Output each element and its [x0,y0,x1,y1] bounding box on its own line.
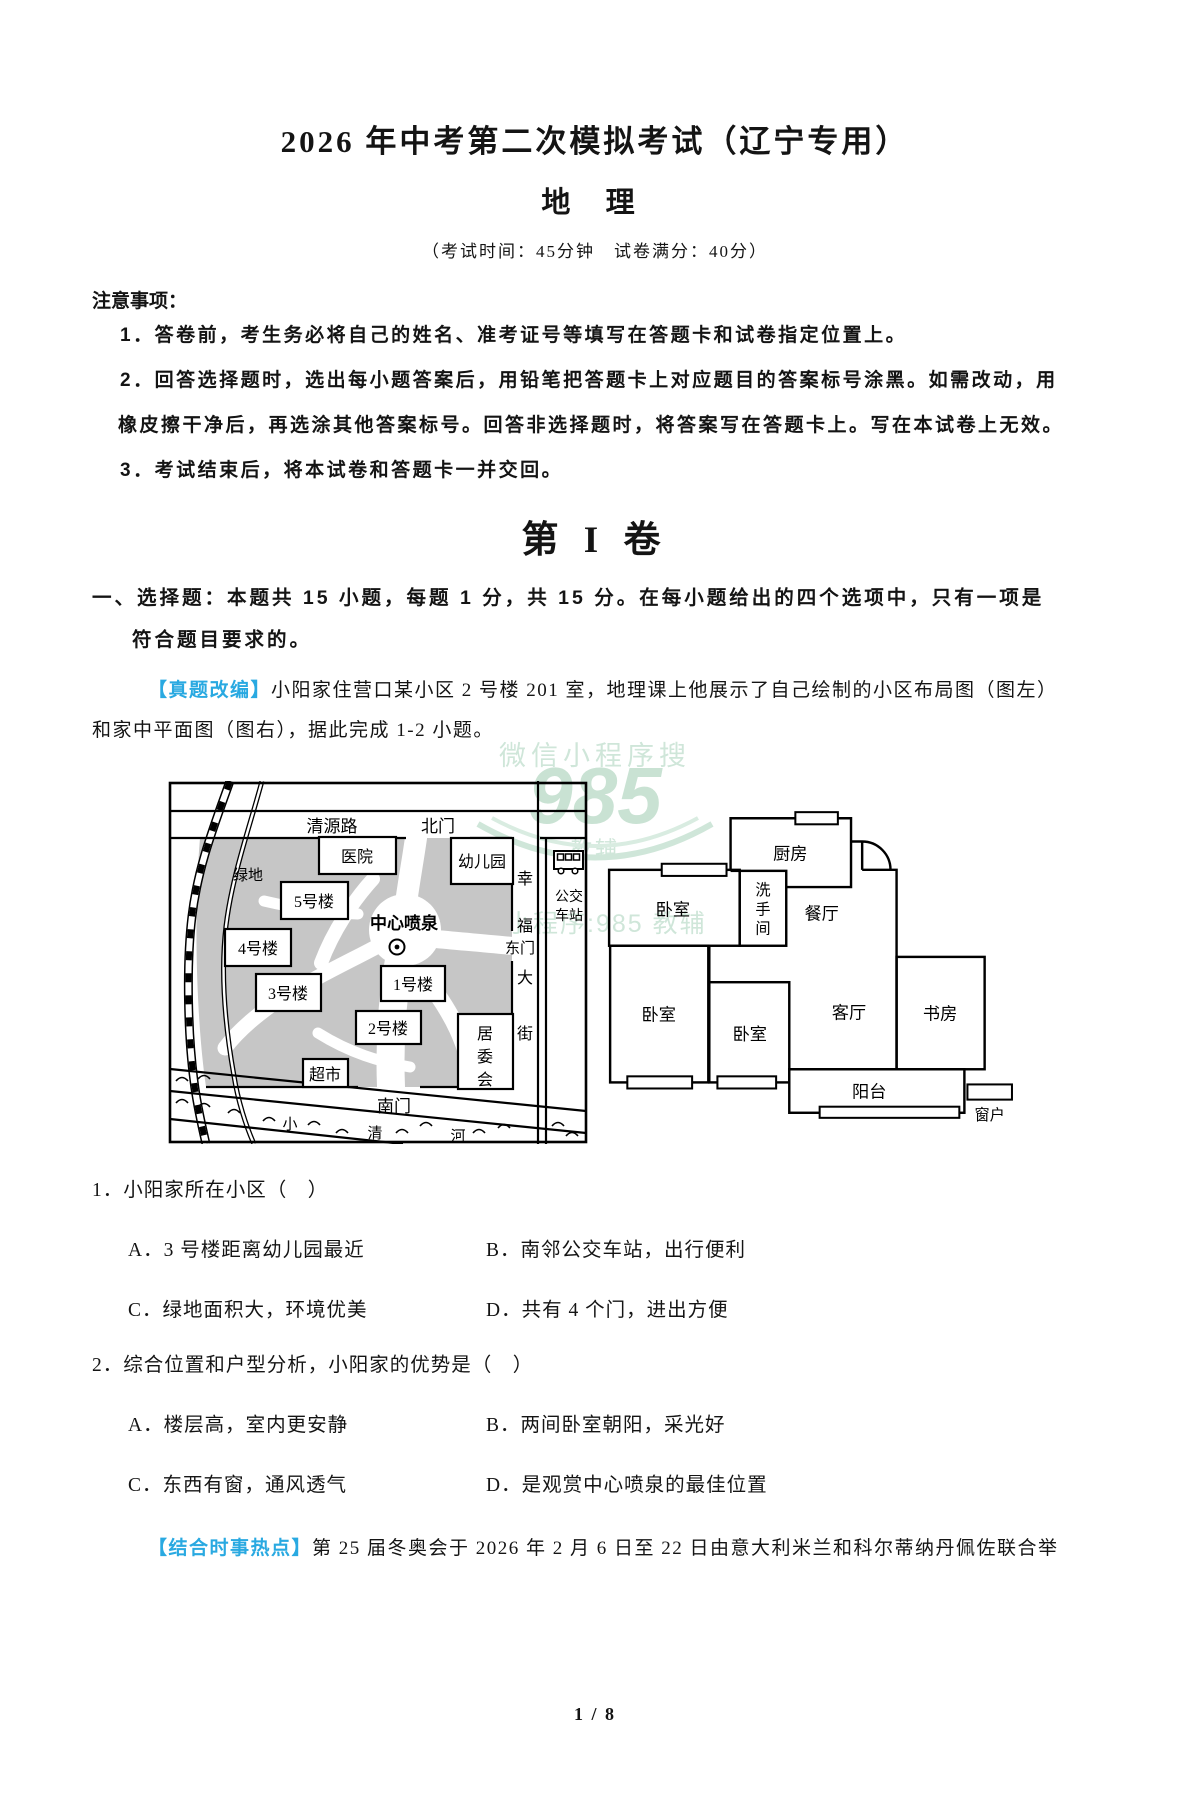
exam-info: （考试时间：45分钟 试卷满分：40分） [92,237,1098,262]
label-north-gate: 北门 [421,817,455,836]
notice-heading: 注意事项： [92,286,1098,313]
label-committee-2: 委 [477,1048,493,1066]
label-balcony: 阳台 [852,1083,886,1102]
label-street-3: 大 [517,969,533,987]
volume-title: 第 I 卷 [92,509,1098,563]
page-title: 2026 年中考第二次模拟考试（辽宁专用） [92,116,1098,161]
label-hospital: 医院 [341,848,373,866]
fountain-icon [390,940,405,955]
floor-plan-figure: 厨房 卧室 洗 手 间 餐厅 卧室 卧室 客厅 书房 阳台 窗户 [600,801,1015,1130]
label-kitchen: 厨房 [773,845,807,864]
window-legend-icon [967,1084,1012,1099]
living-right-wall [862,870,896,1069]
label-window-legend: 窗户 [975,1106,1005,1124]
kitchen-window [795,812,838,824]
label-building2: 2号楼 [368,1020,408,1038]
passage-1-line2: 和家中平面图（图右），据此完成 1-2 小题。 [92,711,1098,751]
section-instruction-line2: 符合题目要求的。 [132,619,1098,661]
label-bus-station-1: 公交 [555,888,583,905]
bedroom-3-window [717,1076,776,1088]
label-east-gate: 东门 [505,940,535,957]
label-street-4: 街 [517,1025,533,1043]
question-1-options-cd: C．绿地面积大，环境优美 D．共有 4 个门，进出方便 [92,1293,1098,1322]
notice-item-1: 1．答卷前，考生务必将自己的姓名、准考证号等填写在答题卡和试卷指定位置上。 [120,313,1098,358]
question-2-option-a: A．楼层高，室内更安静 [128,1408,486,1437]
section-instruction-line1: 一、选择题：本题共 15 小题，每题 1 分，共 15 分。在每小题给出的四个选… [92,577,1098,619]
question-2-options-ab: A．楼层高，室内更安静 B．两间卧室朝阳，采光好 [92,1408,1098,1437]
subject-title: 地 理 [92,179,1098,221]
passage-1-line1: 小阳家住营口某小区 2 号楼 201 室，地理课上他展示了自己绘制的小区布局图（… [271,680,1058,701]
notice-item-2-line2: 橡皮擦干净后，再选涂其他答案标号。回答非选择题时，将答案写在答题卡上。写在本试卷… [118,403,1098,448]
page-number: 1 / 8 [0,1704,1190,1725]
label-river-2: 清 [367,1125,382,1142]
label-washroom-2: 手 [755,901,770,918]
question-1-option-c: C．绿地面积大，环境优美 [128,1293,486,1322]
label-study: 书房 [923,1005,957,1024]
label-committee-3: 会 [477,1071,493,1089]
label-washroom-1: 洗 [755,882,770,899]
label-building1: 1号楼 [393,976,433,994]
label-south-gate: 南门 [377,1097,411,1116]
label-living: 客厅 [832,1004,866,1023]
question-1-option-a: A．3 号楼距离幼儿园最近 [128,1233,486,1262]
question-2-stem: 2．综合位置和户型分析，小阳家的优势是（ ） [92,1348,1098,1377]
label-river-1: 小 [282,1116,297,1133]
question-1-options-ab: A．3 号楼距离幼儿园最近 B．南邻公交车站，出行便利 [92,1233,1098,1262]
label-fountain: 中心喷泉 [370,913,439,933]
notice-item-3: 3．考试结束后，将本试卷和答题卡一并交回。 [120,448,1098,493]
label-river-3: 河 [450,1128,465,1144]
label-bedroom-3: 卧室 [733,1025,767,1044]
label-street-2: 福 [517,917,533,935]
bus-icon [554,851,583,874]
question-1-option-b: B．南邻公交车站，出行便利 [486,1233,1098,1262]
label-green-space: 绿地 [233,867,263,884]
passage-2-text: 第 25 届冬奥会于 2026 年 2 月 6 日至 22 日由意大利米兰和科尔… [312,1538,1059,1559]
question-1-option-d: D．共有 4 个门，进出方便 [486,1293,1098,1322]
label-qingyuan-road: 清源路 [307,817,358,836]
figure-row: 清源路 北门 医院 幼儿园 绿地 5号楼 中心喷泉 4号楼 3号楼 1号楼 2号… [92,755,1098,1147]
question-2-option-c: C．东西有窗，通风透气 [128,1468,486,1497]
label-kindergarten: 幼儿园 [458,853,506,871]
label-bedroom-1: 卧室 [656,900,690,919]
bedroom-2-window [627,1076,692,1088]
label-building5: 5号楼 [294,893,334,911]
label-building3: 3号楼 [268,985,308,1003]
passage-1: 【真题改编】小阳家住营口某小区 2 号楼 201 室，地理课上他展示了自己绘制的… [92,671,1098,751]
community-map-figure: 清源路 北门 医院 幼儿园 绿地 5号楼 中心喷泉 4号楼 3号楼 1号楼 2号… [168,781,588,1144]
label-dining: 餐厅 [804,904,838,923]
question-1-stem: 1．小阳家所在小区（ ） [92,1173,1098,1202]
entry-door [851,842,890,870]
label-washroom-3: 间 [755,921,770,938]
question-2-option-b: B．两间卧室朝阳，采光好 [486,1408,1098,1437]
notice-item-2-line1: 2．回答选择题时，选出每小题答案后，用铅笔把答题卡上对应题目的答案标号涂黑。如需… [120,358,1098,403]
passage-1-tag: 【真题改编】 [148,680,271,701]
bedroom-1-window [662,864,727,876]
balcony-window [820,1107,960,1118]
question-2-option-d: D．是观赏中心喷泉的最佳位置 [486,1468,1098,1497]
label-bedroom-2: 卧室 [642,1006,676,1025]
label-supermarket: 超市 [309,1066,341,1084]
passage-2: 【结合时事热点】第 25 届冬奥会于 2026 年 2 月 6 日至 22 日由… [92,1533,1098,1560]
label-street-1: 幸 [517,870,533,888]
label-bus-station-2: 车站 [555,907,583,924]
label-building4: 4号楼 [238,940,278,958]
passage-2-tag: 【结合时事热点】 [148,1538,312,1559]
label-committee-1: 居 [477,1026,493,1043]
question-2-options-cd: C．东西有窗，通风透气 D．是观赏中心喷泉的最佳位置 [92,1468,1098,1497]
